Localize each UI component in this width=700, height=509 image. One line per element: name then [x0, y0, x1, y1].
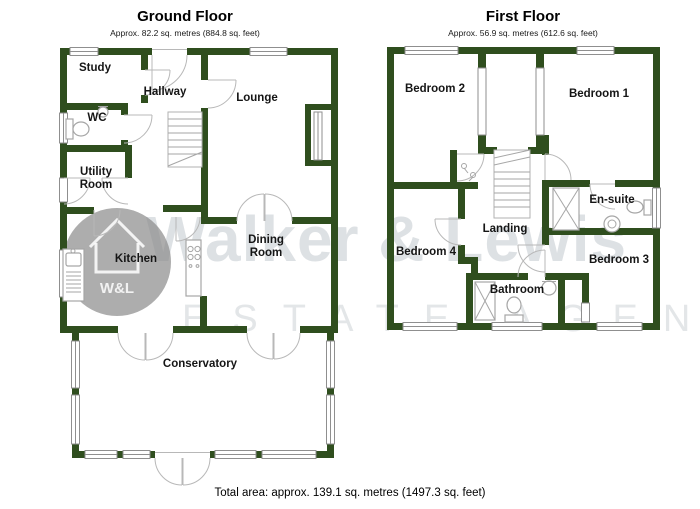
- logo-monogram: W&L: [100, 280, 134, 297]
- ground-floor-header: Ground Floor Approx. 82.2 sq. metres (88…: [35, 8, 335, 38]
- room-label-dining: Dining: [248, 234, 284, 246]
- room-label-lounge: Lounge: [236, 92, 278, 104]
- staircase-icon: [168, 112, 202, 167]
- stove-icon: [186, 240, 201, 296]
- sink-icon: [63, 249, 84, 301]
- dining-french-door-arc: [265, 194, 292, 221]
- first-floor-title: First Floor: [373, 8, 673, 25]
- kitchen-door-arc: [176, 217, 200, 241]
- room-label-landing: Landing: [483, 223, 528, 235]
- garden-door-arc: [183, 458, 210, 485]
- room-label-kitchen: Kitchen: [115, 253, 157, 265]
- room-label-study: Study: [79, 62, 112, 74]
- conservatory-door-arc: [146, 333, 173, 360]
- bedroom4-door-arc: [435, 219, 461, 245]
- room-label-bedroom4: Bedroom 4: [396, 246, 457, 258]
- stairwell-partition: [536, 68, 544, 135]
- wc-door-arc: [124, 115, 152, 143]
- garden-door-arc: [155, 458, 182, 485]
- dining-french-door-arc: [237, 194, 264, 221]
- room-label-bedroom3: Bedroom 3: [589, 254, 649, 266]
- room-label-ensuite: En-suite: [589, 194, 634, 206]
- toilet-icon: [66, 119, 89, 139]
- room-label-dining: Room: [250, 247, 283, 259]
- room-label-utility: Room: [80, 179, 113, 191]
- room-label-utility: Utility: [80, 166, 113, 178]
- stairwell-partition: [478, 68, 486, 135]
- conservatory-door-arc: [118, 333, 145, 360]
- first-floor-fixtures: [462, 150, 652, 322]
- cupboard-door: [582, 303, 590, 322]
- toilet-icon: [505, 297, 523, 322]
- floorplan-page: Walker & Lewis ESTATE AGENTS Ground Floo…: [0, 0, 700, 509]
- first-floor-area: Approx. 56.9 sq. metres (612.6 sq. feet): [373, 28, 673, 38]
- room-label-bedroom1: Bedroom 1: [569, 88, 630, 100]
- first-floor-header: First Floor Approx. 56.9 sq. metres (612…: [373, 8, 673, 38]
- room-label-bathroom: Bathroom: [490, 284, 544, 296]
- total-area-text: Total area: approx. 139.1 sq. metres (14…: [0, 487, 700, 499]
- room-label-hallway: Hallway: [144, 86, 187, 98]
- basin-icon: [604, 216, 620, 232]
- bedroom1-door-arc: [545, 154, 571, 180]
- bedroom3-door-arc: [518, 245, 545, 272]
- cupboard-door-arc: [457, 154, 484, 181]
- staircase-icon: [494, 150, 530, 218]
- shower-icon: [553, 188, 579, 230]
- floorplan-drawing: W&L: [0, 0, 700, 509]
- room-label-conservatory: Conservatory: [163, 358, 238, 370]
- ground-floor-title: Ground Floor: [35, 8, 335, 25]
- room-label-wc: WC: [87, 112, 106, 124]
- room-label-bedroom2: Bedroom 2: [405, 83, 465, 95]
- lounge-door-arc: [208, 80, 236, 108]
- first-floor-plan: Bedroom 2 Bedroom 1 En-suite Landing Bed…: [387, 47, 661, 331]
- conservatory-door-arc: [274, 333, 300, 359]
- bathroom-door-arc: [518, 250, 545, 277]
- ground-floor-area: Approx. 82.2 sq. metres (884.8 sq. feet): [35, 28, 335, 38]
- conservatory-door-arc: [247, 333, 273, 359]
